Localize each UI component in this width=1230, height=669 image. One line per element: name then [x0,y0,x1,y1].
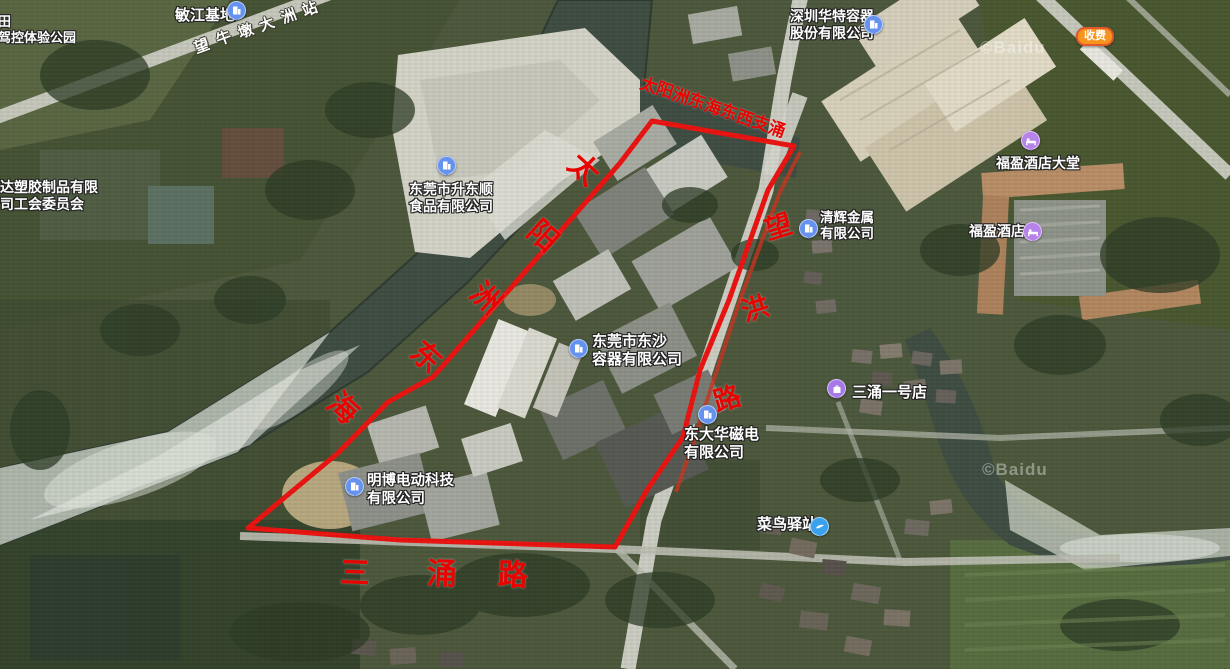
poi-label-fuying-hotel[interactable]: 福盈酒店 [969,221,1025,241]
poi-line: 食品有限公司 [406,198,496,215]
poi-label-dongsha[interactable]: 东莞市东沙 容器有限公司 [592,333,682,370]
poi-line: 有限公司 [684,444,759,462]
building-icon[interactable] [437,156,456,175]
poi-line: 股份有限公司 [790,25,874,42]
sanchong-char: 三 [339,547,371,592]
building-icon[interactable] [345,477,364,496]
poi-line: 东大华磁电 [684,426,759,444]
poi-line: 有限公司 [367,491,454,509]
poi-label-huate[interactable]: 深圳华特容器 股份有限公司 [790,8,874,42]
building-icon[interactable] [698,405,717,424]
bird-icon[interactable] [810,517,829,536]
map-canvas[interactable]: 望 牛 墩 大 洲 站 太 阳 洲 东 海 东 西 支 涌 太 阳 洲 东 海 … [0,0,1230,669]
poi-line: 明博电动科技 [367,473,454,491]
poi-line: 名达塑胶制品有限 [0,179,98,196]
building-icon[interactable] [227,1,246,20]
poi-line: 容器有限公司 [592,351,682,369]
poi-label-mingda-union[interactable]: 名达塑胶制品有限 公司工会委员会 [0,179,98,213]
building-icon[interactable] [569,339,588,358]
toll-badge: 收费 [1076,27,1114,46]
sanchong-char: 路 [497,549,529,594]
poi-label-cainiao[interactable]: 菜鸟驿站 [757,513,817,534]
poi-line: 深圳华特容器 [790,8,874,25]
building-icon[interactable] [864,15,883,34]
poi-line: 东莞市升东顺 [406,181,496,198]
building-icon[interactable] [799,219,818,238]
poi-line: 有限公司 [820,226,874,242]
poi-line: 清辉金属 [820,210,874,226]
poi-line: 东莞市东沙 [592,333,682,351]
hotel-bed-icon[interactable] [1021,131,1040,150]
sanchong-char: 涌 [426,548,458,593]
poi-line: 驾控体验公园 [0,30,76,46]
poi-line: 公司工会委员会 [0,196,98,213]
poi-label-qinghui[interactable]: 清辉金属 有限公司 [820,210,874,243]
shop-bag-icon[interactable] [827,379,846,398]
poi-label-shengdongshun[interactable]: 东莞市升东顺 食品有限公司 [406,181,496,215]
poi-line: 田 [0,14,76,30]
poi-label-minjiang-jidi[interactable]: 敏江基地 [175,4,235,25]
poi-label-sanchong-store[interactable]: 三涌一号店 [852,381,927,402]
hotel-bed-icon[interactable] [1023,222,1042,241]
poi-label-dongdahua[interactable]: 东大华磁电 有限公司 [684,426,759,463]
poi-label-mingbo[interactable]: 明博电动科技 有限公司 [367,473,454,508]
poi-label-park-fragment[interactable]: 田 驾控体验公园 [0,14,76,46]
poi-label-fuying-lobby[interactable]: 福盈酒店大堂 [996,153,1080,173]
